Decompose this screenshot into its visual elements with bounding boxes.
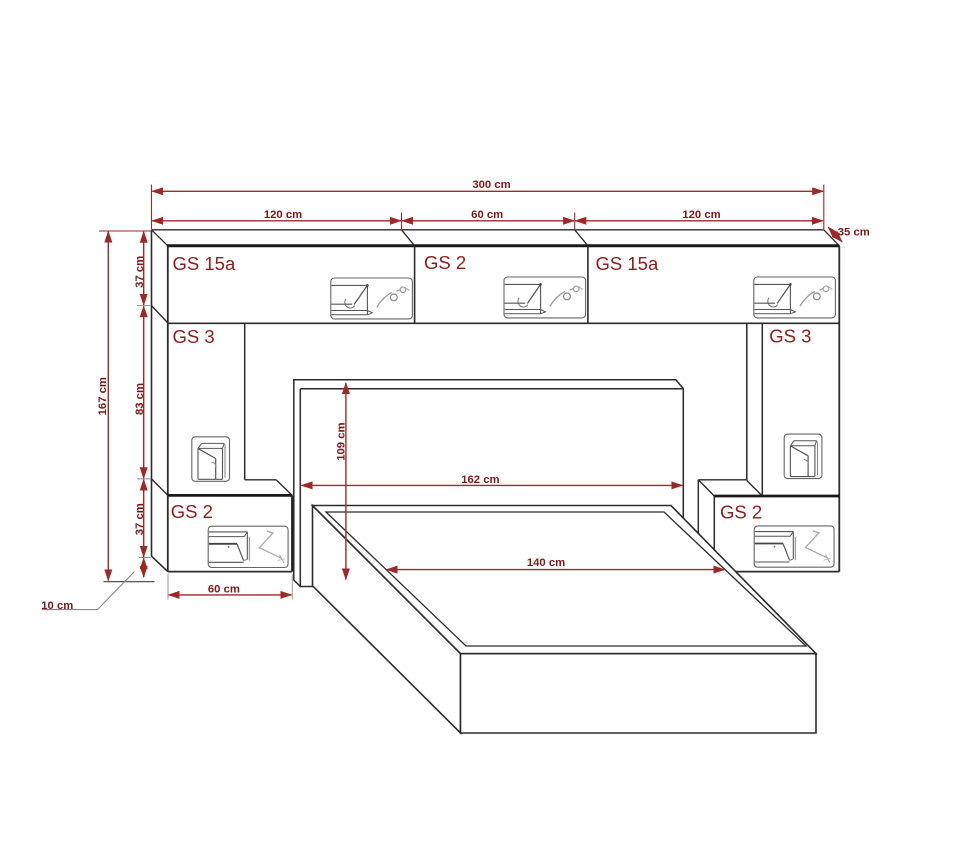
svg-text:10 cm: 10 cm: [41, 600, 73, 612]
svg-text:162 cm: 162 cm: [461, 474, 499, 486]
svg-text:120 cm: 120 cm: [682, 209, 720, 221]
svg-text:109 cm: 109 cm: [336, 422, 348, 460]
svg-text:120 cm: 120 cm: [264, 209, 302, 221]
svg-text:300 cm: 300 cm: [472, 179, 510, 191]
svg-text:GS 2: GS 2: [171, 501, 213, 522]
svg-text:35 cm: 35 cm: [838, 226, 870, 238]
svg-text:GS 2: GS 2: [424, 252, 466, 273]
svg-text:60 cm: 60 cm: [208, 584, 240, 596]
svg-text:GS 3: GS 3: [769, 326, 811, 347]
svg-text:83 cm: 83 cm: [134, 383, 146, 415]
svg-text:60 cm: 60 cm: [471, 209, 503, 221]
svg-text:GS 2: GS 2: [720, 502, 762, 523]
svg-text:GS 15a: GS 15a: [596, 253, 659, 274]
svg-text:37 cm: 37 cm: [134, 503, 146, 535]
svg-text:37 cm: 37 cm: [134, 256, 146, 288]
svg-text:GS 15a: GS 15a: [173, 253, 236, 274]
svg-text:GS 3: GS 3: [173, 326, 215, 347]
svg-text:167 cm: 167 cm: [97, 377, 109, 415]
svg-text:140 cm: 140 cm: [527, 557, 565, 569]
